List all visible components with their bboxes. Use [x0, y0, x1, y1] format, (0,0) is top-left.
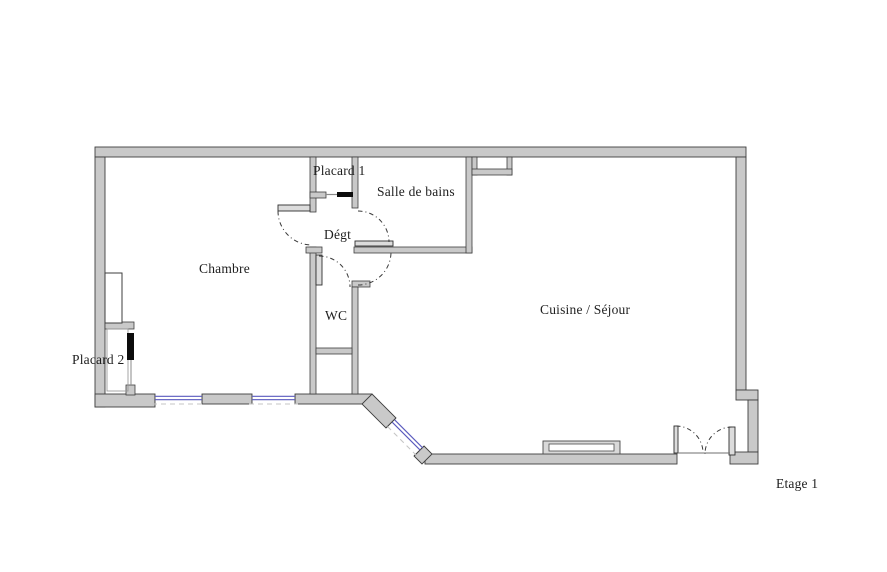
- window-chambre-1: [152, 394, 205, 404]
- wall-right-step: [736, 390, 758, 400]
- sdb-door-arc: [358, 211, 389, 242]
- radiator: [543, 441, 620, 454]
- entry-door-right-arc: [705, 427, 732, 454]
- wall-right-upper: [736, 157, 746, 390]
- duct-bottom: [472, 169, 512, 175]
- wall-bottom-right-run: [425, 454, 677, 464]
- room-label-degt: Dégt: [324, 227, 351, 242]
- room-label-cuisine-sejour: Cuisine / Séjour: [540, 302, 630, 317]
- room-label-placard-1: Placard 1: [313, 163, 365, 178]
- room-label-salle-de-bains: Salle de bains: [377, 184, 455, 199]
- window-chambre-2: [249, 394, 298, 404]
- niche-left-wall: [105, 273, 122, 323]
- level-label: Etage 1: [776, 476, 818, 491]
- wall-chambre-door-jamb: [306, 247, 322, 253]
- degt-sejour-door-arc: [358, 252, 391, 285]
- chambre-door-leaf: [278, 205, 310, 211]
- chambre-door-arc: [278, 211, 312, 245]
- placard1-sliding-door: [337, 192, 353, 197]
- wall-right-lower: [748, 400, 758, 452]
- door-arcs: [278, 211, 732, 454]
- wc-door-leaf: [316, 255, 322, 285]
- room-label-wc: WC: [325, 308, 347, 323]
- floor-plan-drawing: [0, 0, 887, 572]
- sdb-door-leaf: [355, 241, 393, 246]
- wc-door-arc: [319, 256, 350, 287]
- door-leaves: [278, 205, 735, 455]
- wall-placard2-stub: [126, 385, 135, 395]
- closet-outlines: [105, 195, 337, 392]
- wall-chambre-degt-lower: [310, 247, 316, 394]
- placard2-sliding-door: [127, 333, 134, 360]
- wall-corner-bottom-left: [95, 394, 155, 407]
- wall-bottom-left-end: [295, 394, 372, 404]
- entry-door-right-leaf: [729, 427, 735, 455]
- wall-sdb-right: [466, 157, 472, 253]
- entry-door-left-arc: [676, 426, 703, 453]
- wall-bottom-left-mid: [202, 394, 252, 404]
- wall-top: [95, 147, 746, 157]
- wall-wc-divider: [316, 348, 352, 354]
- wall-sdb-bottom: [354, 247, 472, 253]
- room-label-placard-2: Placard 2: [72, 352, 124, 367]
- room-label-chambre: Chambre: [199, 261, 250, 276]
- radiator-inner: [549, 444, 614, 451]
- floor-plan-page: Placard 1 Salle de bains Dégt Chambre WC…: [0, 0, 887, 572]
- entry-door-left-leaf: [674, 426, 678, 453]
- window-diagonal-sejour: [386, 418, 424, 456]
- wall-placard1-bottom-stub: [310, 192, 326, 198]
- wall-degt-sejour-jamb: [352, 281, 370, 287]
- wall-left: [95, 157, 105, 407]
- wall-wc-sejour: [352, 287, 358, 394]
